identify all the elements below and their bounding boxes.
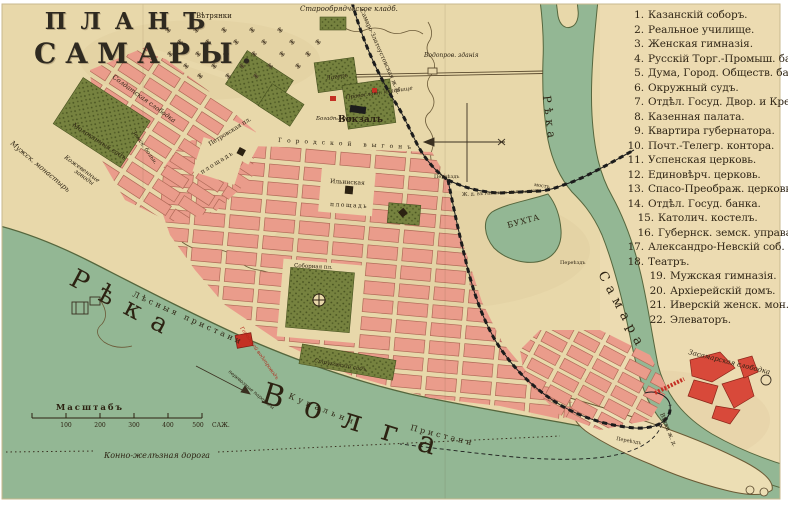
legend-item: 11. Успенская церковь. [627, 155, 785, 166]
legend-item-label: Архіерейскій домъ. [670, 286, 775, 297]
legend-item-number: 6. [627, 83, 644, 94]
legend-item: 22. Элеваторъ. [627, 315, 785, 326]
scale-tick-200: 200 [94, 422, 106, 429]
paper-crease [445, 0, 446, 499]
legend-item-label: Единовѣрч. церковь. [648, 170, 761, 181]
legend-item-number: 3. [627, 39, 644, 50]
legend-item-label: Мужская гимназія. [670, 271, 777, 282]
legend-item: 14. Отдѣл. Госуд. банка. [627, 199, 785, 210]
legend-item-number: 1. [627, 10, 644, 21]
map-page: Масштабъ 100 200 300 400 500 САЖ. Вѣтрян… [0, 0, 788, 512]
scale-unit: САЖ. [212, 422, 230, 429]
label-crossing-2: Переѣздъ [560, 259, 585, 266]
legend-item-number: 14. [627, 199, 644, 210]
legend-item: 15. Католич. костелъ. [627, 213, 785, 224]
legend-item-number: 17. [627, 242, 644, 253]
legend-item: 16. Губернск. земск. управа. [627, 228, 785, 239]
legend-item-label: Дума, Город. Обществ. банкъ. [648, 68, 788, 79]
legend-item-label: Русскій Торг.-Промыш. банкъ. [648, 54, 788, 65]
old-believers-cemetery [320, 17, 346, 30]
legend-item: 18. Театръ. [627, 257, 785, 268]
scan-margin-top [0, 0, 788, 4]
legend-item: 20. Архіерейскій домъ. [627, 286, 785, 297]
legend-item-number: 16. [637, 228, 654, 239]
legend-item-label: Реальное училище. [648, 25, 754, 36]
legend-item-label: Александро-Невскій соб. [648, 242, 785, 253]
legend-item-label: Отдѣл. Госуд. банка. [648, 199, 761, 210]
label-vokzal: Вокзалъ [338, 115, 383, 125]
legend-item-label: Театръ. [648, 257, 689, 268]
legend-item: 17. Александро-Невскій соб. [627, 242, 785, 253]
legend-item-number: 12. [627, 170, 644, 181]
legend-item: 7. Отдѣл. Госуд. Двор. и Крест. банк. [627, 97, 785, 108]
scale-tick-500: 500 [192, 422, 204, 429]
legend-item-label: Почт.-Телегр. контора. [648, 141, 774, 152]
legend-item: 8. Казенная палата. [627, 112, 785, 123]
scale-tick-300: 300 [128, 422, 140, 429]
red-building [330, 96, 336, 101]
legend-item-label: Спасо-Преображ. церковь. [648, 184, 788, 195]
legend-item-label: Отдѣл. Госуд. Двор. и Крест. банк. [648, 97, 788, 108]
legend-item-number: 13. [627, 184, 644, 195]
legend-item: 4. Русскій Торг.-Промыш. банкъ. [627, 54, 785, 65]
legend-item-number: 22. [649, 315, 666, 326]
legend-item-number: 19. [649, 271, 666, 282]
legend-item-number: 5. [627, 68, 644, 79]
legend-item: 21. Иверскій женск. мон. [627, 300, 785, 311]
label-old-believers-cemetery: Старообрядческое кладб. [300, 5, 398, 13]
map-title-line2: САМАРЫ. [34, 37, 230, 70]
legend-item-label: Католич. костелъ. [658, 213, 758, 224]
legend-item: 9. Квартира губернатора. [627, 126, 785, 137]
spit-circle [746, 486, 754, 494]
scan-margin-bottom [0, 499, 788, 512]
legend-item-label: Успенская церковь. [648, 155, 756, 166]
legend-item-label: Элеваторъ. [670, 315, 731, 326]
spit-circle [760, 488, 768, 496]
scale-title: Масштабъ [56, 402, 124, 413]
legend-item-label: Иверскій женск. мон. [670, 300, 788, 311]
church-icon [345, 186, 354, 195]
legend-item-number: 4. [627, 54, 644, 65]
legend-item: 2. Реальное училище. [627, 25, 785, 36]
legend-item-number: 10. [627, 141, 644, 152]
legend-item: 3. Женская гимназія. [627, 39, 785, 50]
label-crossing-1: Переѣздъ [434, 173, 459, 180]
legend-item-number: 21. [649, 300, 666, 311]
legend-item-number: 9. [627, 126, 644, 137]
legend-item-label: Женская гимназія. [648, 39, 753, 50]
legend-item: 6. Окружный судъ. [627, 83, 785, 94]
legend-item-label: Квартира губернатора. [648, 126, 775, 137]
map-title: ПЛАНЪ САМАРЫ. [34, 8, 230, 70]
scale-tick-400: 400 [162, 422, 174, 429]
legend-item: 13. Спасо-Преображ. церковь. [627, 184, 785, 195]
label-horse-railway: Конно-желѣзная дорога [103, 451, 210, 460]
legend-item: 10. Почт.-Телегр. контора. [627, 141, 785, 152]
map-title-line1: ПЛАНЪ [34, 8, 230, 35]
legend-item-number: 7. [627, 97, 644, 108]
legend-item: 19. Мужская гимназія. [627, 271, 785, 282]
legend-item: 12. Единовѣрч. церковь. [627, 170, 785, 181]
legend-item-number: 2. [627, 25, 644, 36]
scale-tick-100: 100 [60, 422, 72, 429]
legend-item-number: 15. [637, 213, 654, 224]
legend-item-number: 20. [649, 286, 666, 297]
legend-item-label: Губернск. земск. управа. [658, 228, 788, 239]
legend-item-label: Казенная палата. [648, 112, 745, 123]
legend-item-number: 18. [627, 257, 644, 268]
legend-item: 1. Казанскій соборъ. [627, 10, 785, 21]
legend-item-number: 8. [627, 112, 644, 123]
legend: 1. Казанскій соборъ. 2. Реальное училище… [627, 10, 785, 329]
legend-item-label: Окружный судъ. [648, 83, 739, 94]
legend-item-label: Казанскій соборъ. [648, 10, 747, 21]
legend-item-number: 11. [627, 155, 644, 166]
legend-item: 5. Дума, Город. Обществ. банкъ. [627, 68, 785, 79]
label-waterworks-station: Водопров. зданія [423, 52, 479, 59]
